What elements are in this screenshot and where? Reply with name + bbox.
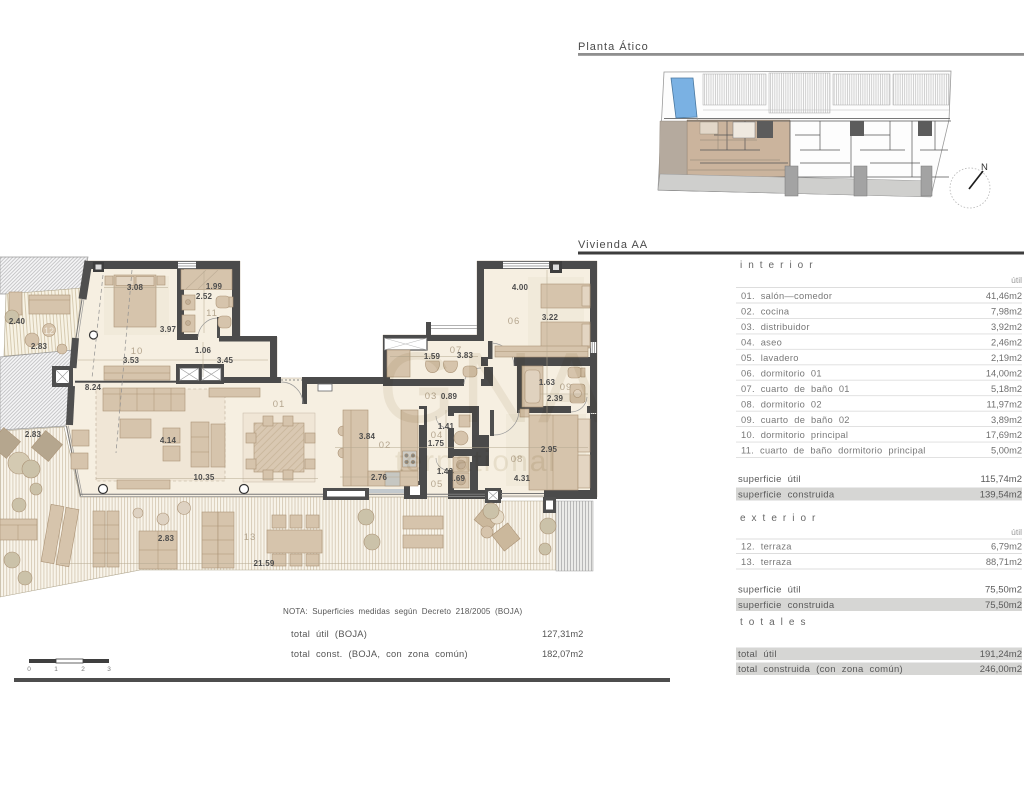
svg-text:superficie útil: superficie útil: [738, 474, 801, 485]
svg-text:7,98m2: 7,98m2: [991, 307, 1022, 317]
svg-text:útil: útil: [1011, 275, 1022, 285]
svg-text:total const. (BOJA, con zo: total const. (BOJA, con zona común): [291, 649, 468, 659]
svg-text:3: 3: [107, 666, 111, 673]
svg-text:N: N: [981, 162, 988, 173]
svg-text:totales: totales: [740, 617, 811, 628]
svg-text:11. cuarto de baño dormito: 11. cuarto de baño dormitorio principal: [741, 446, 926, 456]
svg-text:06. dormitorio 01: 06. dormitorio 01: [741, 368, 822, 378]
svg-text:8.24: 8.24: [85, 383, 102, 392]
svg-text:2: 2: [81, 666, 85, 673]
svg-text:1.99: 1.99: [206, 282, 223, 291]
svg-text:10.35: 10.35: [193, 473, 214, 482]
svg-text:01. salón—comedor: 01. salón—comedor: [741, 291, 832, 301]
svg-text:NOTA: Superficies medidas s: NOTA: Superficies medidas según Decreto …: [283, 607, 523, 616]
svg-text:05. lavadero: 05. lavadero: [741, 353, 799, 363]
svg-text:12. terraza: 12. terraza: [741, 542, 792, 552]
svg-text:41,46m2: 41,46m2: [986, 291, 1022, 301]
svg-text:3.97: 3.97: [160, 325, 177, 334]
svg-text:75,50m2: 75,50m2: [985, 585, 1022, 596]
svg-text:2.52: 2.52: [196, 292, 213, 301]
svg-text:21.59: 21.59: [253, 559, 274, 568]
svg-text:75,50m2: 75,50m2: [985, 600, 1022, 611]
svg-text:interior: interior: [740, 260, 819, 271]
svg-text:11,97m2: 11,97m2: [987, 399, 1023, 409]
svg-text:04. aseo: 04. aseo: [741, 337, 782, 347]
svg-text:08. dormitorio 02: 08. dormitorio 02: [741, 399, 822, 409]
svg-text:4.14: 4.14: [160, 436, 177, 445]
svg-text:2,46m2: 2,46m2: [991, 337, 1022, 347]
svg-text:3.45: 3.45: [217, 356, 234, 365]
svg-text:total útil: total útil: [738, 649, 777, 660]
svg-text:Vivienda AA: Vivienda AA: [578, 239, 648, 251]
svg-text:3.22: 3.22: [542, 313, 559, 322]
svg-text:191,24m2: 191,24m2: [980, 649, 1022, 660]
svg-text:07. cuarto de baño 01: 07. cuarto de baño 01: [741, 384, 850, 394]
svg-text:total construida (con zona: total construida (con zona común): [738, 664, 903, 675]
svg-text:14,00m2: 14,00m2: [986, 368, 1022, 378]
svg-text:superficie útil: superficie útil: [738, 585, 801, 596]
svg-text:6,79m2: 6,79m2: [991, 542, 1022, 552]
svg-text:3.53: 3.53: [123, 356, 140, 365]
svg-text:127,31m2: 127,31m2: [542, 629, 583, 639]
svg-text:1.06: 1.06: [195, 346, 212, 355]
svg-text:09. cuarto de baño 02: 09. cuarto de baño 02: [741, 415, 850, 425]
svg-text:01: 01: [273, 399, 286, 410]
svg-text:útil: útil: [1011, 527, 1022, 537]
svg-text:06: 06: [508, 316, 521, 327]
svg-text:2.40: 2.40: [9, 317, 26, 326]
svg-text:1: 1: [54, 666, 58, 673]
svg-text:2.83: 2.83: [158, 534, 175, 543]
svg-text:10. dormitorio principal: 10. dormitorio principal: [741, 430, 848, 440]
svg-text:0: 0: [27, 666, 31, 673]
svg-text:total útil (BOJA): total útil (BOJA): [291, 629, 367, 639]
svg-text:5,18m2: 5,18m2: [991, 384, 1022, 394]
svg-text:246,00m2: 246,00m2: [980, 664, 1022, 675]
svg-text:exterior: exterior: [740, 513, 821, 524]
svg-text:3.08: 3.08: [127, 283, 144, 292]
svg-text:3,92m2: 3,92m2: [991, 322, 1022, 332]
svg-text:115,74m2: 115,74m2: [980, 474, 1022, 485]
svg-text:ternational: ternational: [395, 445, 557, 478]
svg-text:superficie construida: superficie construida: [738, 490, 835, 501]
svg-text:4.00: 4.00: [512, 283, 529, 292]
svg-text:13: 13: [244, 532, 257, 543]
svg-text:02. cocina: 02. cocina: [741, 307, 790, 317]
svg-text:139,54m2: 139,54m2: [980, 490, 1022, 501]
svg-text:05: 05: [431, 479, 444, 490]
svg-text:11: 11: [206, 308, 218, 319]
svg-text:88,71m2: 88,71m2: [986, 557, 1022, 567]
svg-text:3.84: 3.84: [359, 432, 376, 441]
svg-text:13. terraza: 13. terraza: [741, 557, 792, 567]
svg-text:Planta Ático: Planta Ático: [578, 40, 649, 53]
svg-text:12: 12: [44, 326, 54, 336]
svg-text:2.83: 2.83: [25, 430, 42, 439]
svg-text:03. distribuidor: 03. distribuidor: [741, 322, 810, 332]
svg-text:3,89m2: 3,89m2: [991, 415, 1022, 425]
svg-text:182,07m2: 182,07m2: [542, 649, 583, 659]
svg-text:2,19m2: 2,19m2: [991, 353, 1022, 363]
svg-text:2.83: 2.83: [31, 342, 48, 351]
svg-text:2.76: 2.76: [371, 473, 388, 482]
svg-text:superficie construida: superficie construida: [738, 600, 835, 611]
svg-text:5,00m2: 5,00m2: [991, 446, 1022, 456]
svg-text:17,69m2: 17,69m2: [986, 430, 1022, 440]
